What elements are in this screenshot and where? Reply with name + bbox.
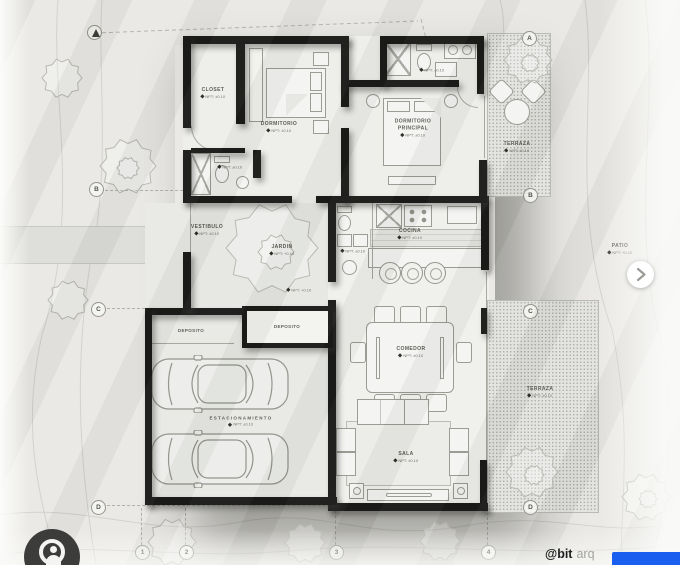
- grid-marker-4: 4: [481, 545, 496, 560]
- wall-segment: [183, 252, 191, 310]
- label-marker-icon: [397, 235, 401, 239]
- wall-segment: [380, 36, 484, 44]
- storage-front-line: [152, 343, 234, 344]
- label-marker-icon: [286, 288, 290, 292]
- trees-layer: [0, 0, 680, 565]
- label-marker-icon: [398, 353, 402, 357]
- grid-marker-3: 3: [329, 545, 344, 560]
- wall-segment: [236, 44, 245, 124]
- room-label-patio: PATIO NPT: +0.10: [608, 243, 632, 255]
- room-label-deposito-1: DEPOSITO: [178, 328, 204, 334]
- sliding-glass-door: [484, 96, 485, 158]
- wall-segment: [477, 36, 484, 94]
- room-label-comedor: COMEDOR NPT: ±0.10: [397, 346, 426, 358]
- room-label-bano-social: NPT: ±0.10: [341, 248, 365, 253]
- label-marker-icon: [607, 250, 611, 254]
- wall-segment: [341, 128, 349, 203]
- room-label-terraza-este: TERRAZA NPT: ±0.10: [527, 386, 554, 398]
- room-label-dormitorio-principal: DORMITORIO PRINCIPAL NPT: ±0.10: [395, 119, 431, 138]
- partition-line: [372, 203, 373, 279]
- label-marker-icon: [217, 165, 221, 169]
- label-marker-icon: [266, 128, 270, 132]
- room-label-closet: CLOSET NPT: ±0.10: [201, 87, 225, 99]
- grid-marker-d-left: D: [91, 500, 106, 515]
- room-label-estacionamiento: ESTACIONAMIENTO NPT: ±0.10: [209, 415, 272, 426]
- courtyard-npt-label: NPT: +0.10: [287, 287, 311, 292]
- wall-segment: [183, 196, 292, 203]
- wall-segment: [191, 148, 245, 153]
- wall-segment: [145, 497, 337, 505]
- wall-segment: [481, 203, 489, 270]
- room-label-dormitorio: DORMITORIO NPT: ±0.10: [261, 121, 297, 133]
- wall-segment: [328, 196, 489, 203]
- grid-marker-a-right: A: [522, 31, 537, 46]
- north-arrow-icon: [87, 25, 102, 40]
- room-label-terraza-norte: TERRAZA NPT: ±0.10: [504, 141, 531, 153]
- grid-marker-2: 2: [179, 545, 194, 560]
- floor-plan-post-image: CLOSET NPT: ±0.10 DORMITORIO NPT: ±0.10 …: [0, 0, 680, 565]
- wall-segment: [341, 87, 349, 107]
- grid-marker-d-right: D: [523, 500, 538, 515]
- sliding-glass-door: [486, 272, 487, 460]
- label-marker-icon: [200, 94, 204, 98]
- label-marker-icon: [419, 68, 423, 72]
- wall-segment: [145, 308, 152, 505]
- room-label-bano-1: NPT: ±0.10: [218, 164, 242, 169]
- grid-marker-c-left: C: [91, 302, 106, 317]
- cta-button-fragment[interactable]: [612, 552, 680, 565]
- carousel-next-button[interactable]: [627, 261, 654, 288]
- room-label-deposito-2: DEPOSITO: [274, 324, 300, 330]
- room-label-cocina: COCINA NPT: ±0.10: [398, 228, 422, 240]
- label-marker-icon: [340, 249, 344, 253]
- label-marker-icon: [194, 231, 198, 235]
- wall-segment: [253, 150, 261, 178]
- label-marker-icon: [400, 133, 404, 137]
- room-label-jardin: JARDIN NPT: +0.10: [270, 244, 294, 256]
- grid-marker-1: 1: [135, 545, 150, 560]
- label-marker-icon: [527, 393, 531, 397]
- wall-segment: [479, 160, 487, 203]
- wall-segment: [183, 36, 191, 128]
- room-label-sala: SALA NPT: ±0.10: [394, 451, 418, 463]
- grid-marker-c-right: C: [523, 304, 538, 319]
- chevron-right-icon: [627, 261, 654, 288]
- wall-segment: [183, 36, 349, 44]
- label-marker-icon: [228, 422, 232, 426]
- wall-segment: [145, 308, 243, 315]
- room-label-vestibulo: VESTIBULO NPT: ±0.10: [191, 224, 223, 236]
- room-label-bano-principal: NPT: ±0.10: [420, 67, 444, 72]
- label-marker-icon: [504, 148, 508, 152]
- wall-segment: [481, 308, 487, 334]
- wall-segment: [328, 203, 336, 282]
- wall-segment: [341, 80, 459, 87]
- grid-marker-b-right: B: [523, 188, 538, 203]
- label-marker-icon: [269, 251, 273, 255]
- grid-marker-b-left: B: [89, 182, 104, 197]
- watermark-handle: @bitarq: [545, 547, 595, 561]
- label-marker-icon: [393, 458, 397, 462]
- wall-segment: [328, 503, 488, 511]
